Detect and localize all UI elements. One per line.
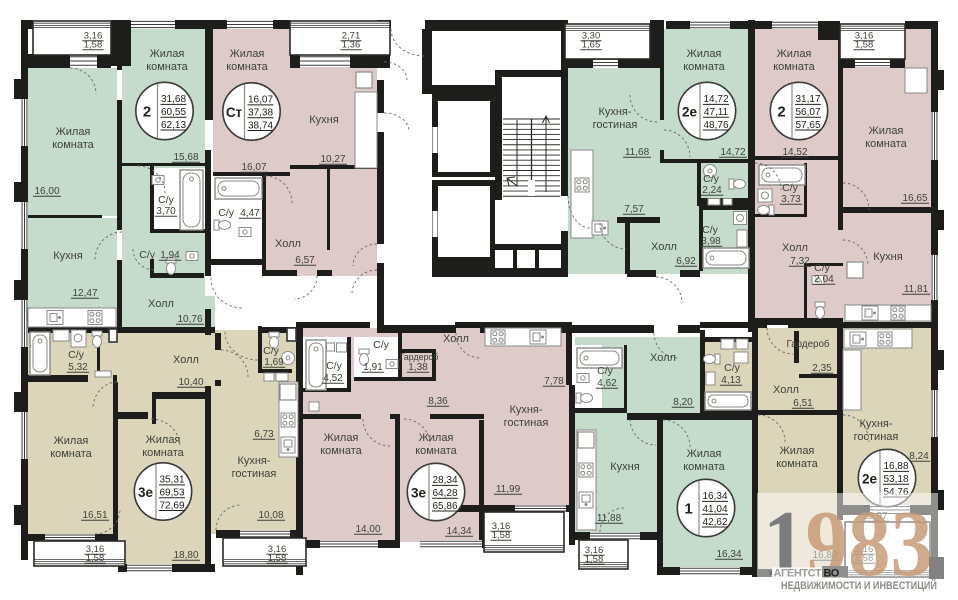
- svg-text:2е: 2е: [862, 472, 878, 487]
- svg-text:16,51: 16,51: [82, 510, 107, 521]
- svg-text:Жилая: Жилая: [150, 48, 185, 60]
- svg-text:Жилая: Жилая: [146, 434, 181, 446]
- svg-text:комната: комната: [146, 61, 188, 73]
- svg-text:57,65: 57,65: [795, 120, 820, 131]
- svg-text:комната: комната: [776, 458, 818, 470]
- svg-text:гостиная: гостиная: [854, 431, 899, 443]
- svg-text:Кухня-: Кухня-: [509, 404, 542, 416]
- svg-text:комната: комната: [226, 61, 268, 73]
- svg-text:72,69: 72,69: [159, 500, 184, 511]
- svg-text:С/у: С/у: [703, 173, 720, 185]
- svg-text:Жилая: Жилая: [56, 126, 91, 138]
- svg-text:1: 1: [684, 501, 692, 518]
- svg-text:С/у: С/у: [373, 339, 390, 351]
- svg-text:47,11: 47,11: [704, 107, 729, 118]
- svg-text:Кухня-: Кухня-: [859, 418, 892, 430]
- svg-text:Жилая: Жилая: [230, 48, 265, 60]
- svg-text:комната: комната: [773, 61, 815, 73]
- svg-text:8,36: 8,36: [428, 396, 448, 407]
- svg-text:4,62: 4,62: [597, 378, 617, 389]
- svg-text:7,78: 7,78: [544, 376, 564, 387]
- svg-text:3,70: 3,70: [156, 206, 176, 217]
- svg-text:комната: комната: [142, 447, 184, 459]
- svg-text:12,47: 12,47: [72, 288, 97, 299]
- svg-text:4,13: 4,13: [721, 375, 741, 386]
- svg-text:6,51: 6,51: [793, 398, 813, 409]
- svg-text:Гардероб: Гардероб: [786, 339, 829, 350]
- svg-text:комната: комната: [320, 445, 362, 457]
- svg-text:62,13: 62,13: [161, 120, 186, 131]
- svg-text:1,58: 1,58: [492, 530, 511, 541]
- svg-text:16,34: 16,34: [716, 549, 741, 560]
- svg-text:1,65: 1,65: [582, 40, 601, 51]
- svg-text:С/у: С/у: [782, 182, 799, 194]
- svg-text:Жилая: Жилая: [324, 432, 359, 444]
- svg-text:гостиная: гостиная: [232, 468, 277, 480]
- svg-text:2: 2: [777, 104, 785, 121]
- svg-text:6,92: 6,92: [676, 256, 696, 267]
- svg-text:3,98: 3,98: [701, 236, 721, 247]
- svg-text:4,52: 4,52: [323, 373, 343, 384]
- svg-text:53,18: 53,18: [883, 474, 908, 485]
- svg-text:1,58: 1,58: [86, 553, 105, 564]
- svg-text:14,72: 14,72: [703, 94, 728, 105]
- svg-text:1,94: 1,94: [160, 250, 180, 261]
- svg-text:Кухня: Кухня: [309, 114, 338, 126]
- svg-text:С/у: С/у: [814, 262, 831, 274]
- svg-text:гостиная: гостиная: [504, 417, 549, 429]
- svg-text:Холл: Холл: [782, 242, 808, 254]
- svg-text:16,34: 16,34: [702, 491, 727, 502]
- svg-text:С/у: С/у: [263, 345, 280, 357]
- svg-text:1,58: 1,58: [585, 554, 604, 565]
- svg-text:Жилая: Жилая: [687, 48, 722, 60]
- svg-text:37,38: 37,38: [248, 108, 273, 119]
- svg-text:С/у: С/у: [68, 349, 85, 361]
- svg-text:14,52: 14,52: [782, 147, 807, 158]
- svg-text:1,58: 1,58: [855, 40, 874, 51]
- svg-text:Кухня: Кухня: [53, 250, 82, 262]
- svg-text:11,81: 11,81: [904, 284, 929, 295]
- svg-text:С/у: С/у: [702, 224, 719, 236]
- svg-text:10,40: 10,40: [178, 377, 203, 388]
- svg-text:Гардероб: Гардероб: [400, 352, 439, 362]
- svg-text:комната: комната: [865, 138, 907, 150]
- svg-text:7,32: 7,32: [790, 256, 810, 267]
- svg-text:16,07: 16,07: [248, 95, 273, 106]
- svg-text:2,24: 2,24: [702, 185, 722, 196]
- svg-text:1,69: 1,69: [264, 357, 284, 368]
- svg-text:3е: 3е: [138, 485, 154, 500]
- svg-text:3е: 3е: [411, 486, 427, 501]
- svg-text:11,99: 11,99: [496, 484, 521, 495]
- svg-text:1,91: 1,91: [363, 362, 383, 373]
- svg-text:11,68: 11,68: [625, 147, 650, 158]
- svg-text:Ст: Ст: [226, 105, 243, 120]
- svg-text:комната: комната: [52, 139, 94, 151]
- svg-text:16,65: 16,65: [902, 193, 927, 204]
- svg-text:2,04: 2,04: [814, 274, 834, 285]
- svg-text:38,74: 38,74: [248, 120, 273, 131]
- svg-text:1,36: 1,36: [342, 40, 361, 51]
- svg-text:С/у: С/у: [724, 362, 741, 374]
- svg-text:65,86: 65,86: [432, 501, 457, 512]
- svg-text:56,07: 56,07: [795, 107, 820, 118]
- svg-text:Жилая: Жилая: [869, 125, 904, 137]
- svg-text:31,17: 31,17: [795, 94, 820, 105]
- svg-text:Холл: Холл: [651, 241, 677, 253]
- svg-text:Холл: Холл: [275, 238, 301, 250]
- svg-text:Холл: Холл: [173, 354, 199, 366]
- svg-text:6,73: 6,73: [254, 429, 274, 440]
- svg-text:Кухня-: Кухня-: [598, 106, 631, 118]
- svg-text:8,20: 8,20: [673, 397, 693, 408]
- svg-text:Холл: Холл: [443, 333, 469, 345]
- svg-text:С/у: С/у: [139, 249, 156, 261]
- svg-text:3,73: 3,73: [781, 194, 801, 205]
- svg-text:16,00: 16,00: [34, 186, 59, 197]
- svg-text:Жилая: Жилая: [419, 432, 454, 444]
- svg-text:60,55: 60,55: [161, 107, 186, 118]
- svg-text:16,07: 16,07: [241, 162, 266, 173]
- svg-text:комната: комната: [683, 61, 725, 73]
- svg-text:ВО: ВО: [824, 568, 840, 580]
- svg-text:10,08: 10,08: [258, 510, 283, 521]
- svg-text:Жилая: Жилая: [780, 445, 815, 457]
- svg-text:1,58: 1,58: [84, 40, 103, 51]
- svg-text:комната: комната: [415, 445, 457, 457]
- svg-text:Холл: Холл: [773, 384, 799, 396]
- svg-text:18,80: 18,80: [173, 550, 198, 561]
- svg-text:гостиная: гостиная: [593, 119, 638, 131]
- svg-text:С/у: С/у: [218, 207, 235, 219]
- svg-text:Жилая: Жилая: [777, 48, 812, 60]
- svg-text:2,35: 2,35: [812, 363, 832, 374]
- svg-text:Кухня: Кухня: [873, 251, 902, 263]
- svg-text:16,88: 16,88: [883, 461, 908, 472]
- svg-text:комната: комната: [683, 461, 725, 473]
- svg-text:5,32: 5,32: [68, 362, 88, 373]
- svg-text:42,62: 42,62: [702, 517, 727, 528]
- svg-text:10,76: 10,76: [177, 314, 202, 325]
- svg-text:11,88: 11,88: [597, 513, 622, 524]
- svg-text:Жилая: Жилая: [54, 435, 89, 447]
- svg-text:4,47: 4,47: [240, 208, 260, 219]
- svg-text:С/у: С/у: [597, 365, 614, 377]
- svg-text:69,53: 69,53: [159, 488, 184, 499]
- svg-text:2: 2: [143, 104, 151, 121]
- svg-text:41,04: 41,04: [702, 504, 727, 515]
- svg-text:35,31: 35,31: [159, 475, 184, 486]
- svg-text:Кухня-: Кухня-: [237, 455, 270, 467]
- svg-text:С/у: С/у: [158, 194, 175, 206]
- svg-text:комната: комната: [50, 448, 92, 460]
- svg-text:Кухня: Кухня: [610, 461, 639, 473]
- svg-text:1,58: 1,58: [268, 553, 287, 564]
- svg-text:Холл: Холл: [148, 298, 174, 310]
- svg-text:7,57: 7,57: [624, 204, 644, 215]
- svg-text:Жилая: Жилая: [687, 448, 722, 460]
- svg-text:6,57: 6,57: [295, 255, 315, 266]
- svg-text:НЕДВИЖИМОСТИ И ИНВЕСТИЦИЙ: НЕДВИЖИМОСТИ И ИНВЕСТИЦИЙ: [781, 579, 937, 592]
- svg-text:14,00: 14,00: [355, 524, 380, 535]
- svg-text:48,76: 48,76: [703, 120, 728, 131]
- svg-text:2е: 2е: [682, 105, 698, 120]
- svg-text:31,68: 31,68: [161, 94, 186, 105]
- svg-text:64,28: 64,28: [432, 488, 457, 499]
- svg-text:1,38: 1,38: [408, 362, 428, 373]
- svg-text:28,34: 28,34: [432, 475, 457, 486]
- svg-text:С/у: С/у: [326, 360, 343, 372]
- svg-text:8,24: 8,24: [909, 451, 929, 462]
- svg-text:15,68: 15,68: [173, 152, 198, 163]
- svg-text:АГЕНТСТ: АГЕНТСТ: [774, 568, 822, 580]
- svg-text:Холл: Холл: [650, 352, 676, 364]
- svg-text:14,72: 14,72: [720, 147, 745, 158]
- svg-text:10,27: 10,27: [320, 154, 345, 165]
- svg-text:14,34: 14,34: [446, 526, 471, 537]
